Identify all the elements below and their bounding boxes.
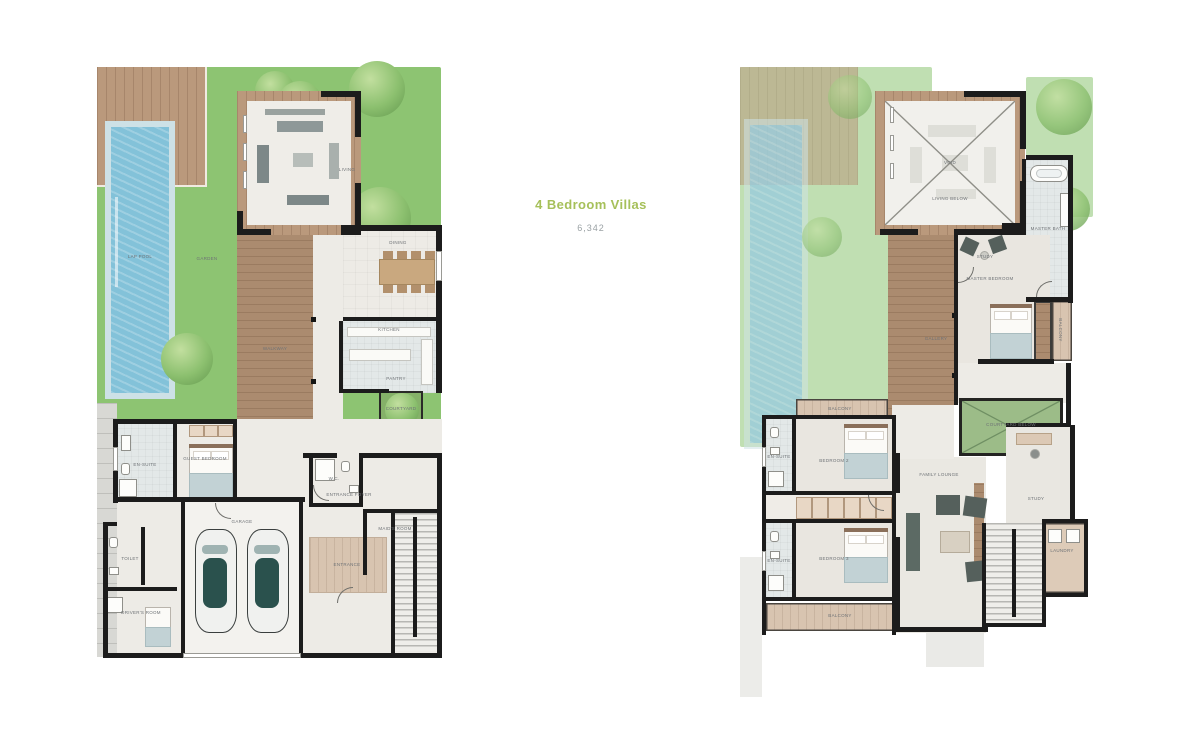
room-label: VOID (944, 161, 956, 166)
room-label: FAMILY LOUNGE (919, 472, 958, 477)
room-label: KITCHEN (378, 327, 400, 332)
room-label: GALLERY (925, 336, 948, 341)
room-label: DRIVER'S ROOM (121, 610, 161, 615)
room-label: LAP POOL (128, 254, 152, 259)
plan-title-block: 4 Bedroom Villas 6,342 (491, 197, 691, 233)
room-label: BEDROOM 3 (819, 556, 848, 561)
room-labels: LAP POOLGARDENLIVINGDININGKITCHENPANTRYC… (97, 67, 442, 661)
room-label: BALCONY (828, 613, 851, 618)
room-label: LAUNDRY (1050, 548, 1073, 553)
first-floor-plan: VOIDLIVING BELOWMASTER BATHSTUDYMASTER B… (740, 67, 1093, 661)
area-subtitle: 6,342 (491, 223, 691, 233)
room-label: WALKWAY (263, 346, 287, 351)
room-label: PANTRY (386, 376, 405, 381)
room-label: EN-SUITE (133, 462, 156, 467)
room-label: COURTYARD (386, 406, 417, 411)
room-label: STUDY (977, 254, 994, 259)
ground-floor-plan: LAP POOLGARDENLIVINGDININGKITCHENPANTRYC… (97, 67, 442, 661)
room-label: EN-SUITE (767, 559, 790, 564)
room-label: W.C. (329, 477, 340, 482)
room-label: GUEST BEDROOM (183, 456, 226, 461)
room-label: BALCONY (828, 406, 851, 411)
room-label: DINING (389, 240, 406, 245)
room-label: BEDROOM 2 (819, 458, 848, 463)
room-label: COURTYARD BELOW (986, 422, 1036, 427)
floorplan-page: 4 Bedroom Villas 6,342 (0, 0, 1200, 733)
room-label: MASTER BEDROOM (966, 276, 1013, 281)
room-label: STUDY (1028, 496, 1045, 501)
room-label: GARAGE (231, 519, 252, 524)
page-title: 4 Bedroom Villas (491, 197, 691, 212)
room-label: EN-SUITE (767, 455, 790, 460)
room-label: MAID'S ROOM (378, 526, 411, 531)
room-label: GARDEN (197, 256, 218, 261)
room-label: BALCONY (1057, 318, 1062, 341)
room-label: LIVING BELOW (932, 196, 968, 201)
room-label: ENTRANCE (334, 562, 361, 567)
room-label: TOILET (121, 556, 138, 561)
room-label: MASTER BATH (1031, 226, 1066, 231)
room-labels: VOIDLIVING BELOWMASTER BATHSTUDYMASTER B… (740, 67, 1093, 661)
room-label: ENTRANCE FOYER (326, 493, 371, 498)
room-label: LIVING (339, 167, 355, 172)
